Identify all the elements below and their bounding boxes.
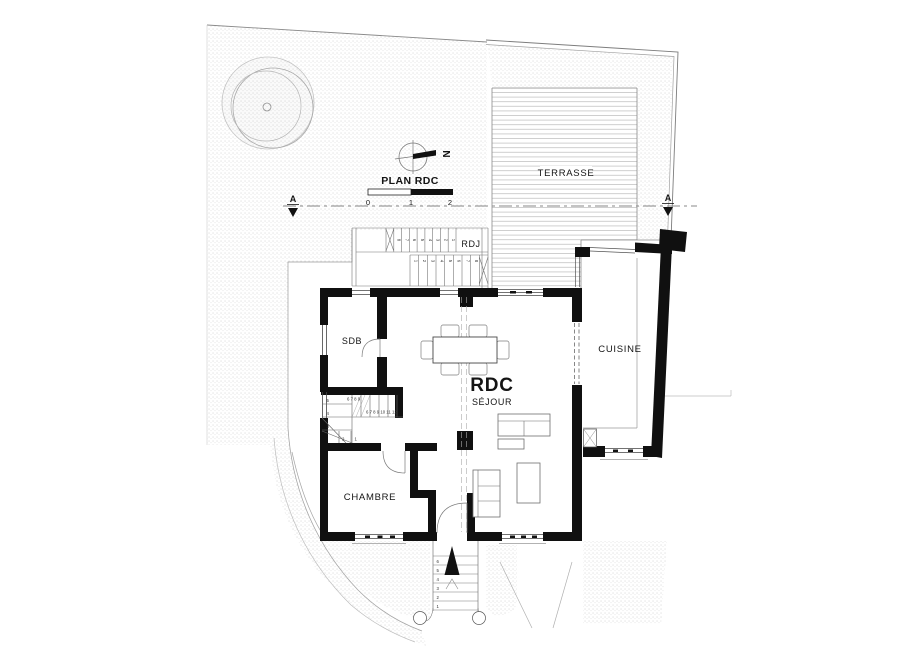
entrance-step-number: 1 bbox=[437, 604, 440, 609]
stair-numbers-upper: 6 7 8 9 10 11 12 bbox=[366, 410, 397, 415]
rdj-step-number: 6 bbox=[457, 260, 462, 263]
rdj-step-number: 1 bbox=[451, 239, 456, 242]
entrance-step-number: 6 bbox=[437, 559, 440, 564]
terrain-right-of-entry bbox=[486, 545, 517, 615]
wall-stair-stub bbox=[395, 395, 403, 418]
scale-bar-black bbox=[411, 189, 453, 195]
window-sdb-west bbox=[323, 325, 327, 355]
stair-number: 2 bbox=[342, 437, 345, 442]
wall-south bbox=[320, 532, 355, 541]
rdj-label: RDJ bbox=[461, 239, 480, 249]
window-mullion bbox=[390, 536, 395, 539]
entrance-step-number: 3 bbox=[437, 586, 440, 591]
cuisine-window-mullion bbox=[613, 450, 618, 453]
stair-numbers-mid: 6 7 8 9 bbox=[347, 397, 361, 402]
cuisine-counter-line bbox=[583, 258, 637, 428]
side-table bbox=[498, 439, 524, 449]
furniture bbox=[421, 325, 550, 517]
rdj-step-number: 4 bbox=[428, 239, 433, 242]
interior-stair: 5 4 3 2 1 6 7 8 9 6 7 8 9 10 11 12 bbox=[322, 395, 403, 443]
sofa-vertical bbox=[473, 470, 500, 517]
wall-east bbox=[572, 288, 582, 322]
rdj-step-number: 1 bbox=[413, 260, 418, 263]
tree-symbol bbox=[222, 57, 314, 149]
entrance-stair-sides bbox=[433, 541, 478, 611]
rdj-step-number: 4 bbox=[439, 260, 444, 263]
rdj-step-number: 7 bbox=[465, 260, 470, 263]
door-chambre bbox=[383, 451, 405, 473]
wall-chambre-jog bbox=[410, 490, 436, 498]
cuisine-glazing-north bbox=[590, 248, 635, 254]
cuisine-wall-south bbox=[583, 446, 605, 457]
wall-duct-block bbox=[457, 431, 473, 450]
wall-sdb-east bbox=[377, 292, 387, 339]
scale-bar-white bbox=[368, 189, 411, 195]
chair bbox=[469, 363, 487, 375]
scale-tick-0: 0 bbox=[366, 198, 370, 207]
entrance-arrow bbox=[445, 546, 460, 575]
window-mullion bbox=[532, 536, 537, 539]
rdj-upper-step-numbers: 8 7 6 5 4 3 2 1 bbox=[397, 239, 456, 242]
rdj-stairs: 8 7 6 5 4 3 2 1 1 2 3 4 5 6 7 8 RDJ bbox=[352, 228, 488, 288]
north-letter: N bbox=[440, 150, 451, 157]
wall-north bbox=[458, 288, 498, 297]
cuisine-window-mullion bbox=[628, 450, 633, 453]
rdj-step-number: 5 bbox=[448, 260, 453, 263]
chair bbox=[441, 325, 459, 337]
stair-number: 4 bbox=[327, 411, 330, 416]
wall-east bbox=[572, 385, 582, 541]
window-sdb-north bbox=[352, 291, 370, 295]
sejour-furniture bbox=[473, 414, 550, 517]
stair-number: 1 bbox=[355, 437, 358, 442]
chambre-label: CHAMBRE bbox=[344, 492, 396, 503]
sejour-label: SÉJOUR bbox=[472, 397, 512, 407]
wall-stair-top bbox=[321, 387, 403, 395]
wall-west bbox=[320, 288, 328, 325]
sdb-label: SDB bbox=[342, 336, 362, 346]
cuisine-corner-pier bbox=[575, 247, 590, 257]
entrance-post-left bbox=[414, 612, 427, 625]
entrance-step-number: 5 bbox=[437, 568, 440, 573]
entrance-step-number: 2 bbox=[437, 595, 440, 600]
wall-chambre-east bbox=[410, 443, 418, 497]
property-line-right bbox=[662, 390, 731, 396]
window-mullion bbox=[378, 536, 383, 539]
wall-chambre-east-lower bbox=[428, 498, 436, 534]
chair bbox=[497, 341, 509, 359]
rdj-step-number: 5 bbox=[420, 239, 425, 242]
rdc-label: RDC bbox=[470, 375, 514, 396]
rdj-step-number: 8 bbox=[397, 239, 402, 242]
window-mullion bbox=[510, 536, 515, 539]
section-marker-left-label: A bbox=[290, 194, 297, 204]
dining-set bbox=[421, 325, 509, 375]
rdj-lower-flight-cross bbox=[479, 257, 488, 284]
terrasse-deck bbox=[492, 88, 637, 240]
scale-tick-1: 1 bbox=[409, 198, 413, 207]
wall-south bbox=[467, 532, 502, 541]
slider-handle bbox=[510, 291, 516, 294]
wall-west bbox=[320, 355, 328, 392]
floor-plan-svg: TERRASSE A A N PLAN RDC 0 1 2 8 7 6 bbox=[0, 0, 919, 650]
section-marker-right-label: A bbox=[665, 193, 672, 203]
cuisine-pass-through-opening bbox=[575, 323, 580, 384]
terrain-bottom-right bbox=[583, 541, 667, 624]
chair bbox=[441, 363, 459, 375]
scale-tick-2: 2 bbox=[448, 198, 452, 207]
door-entrance bbox=[437, 503, 467, 533]
rdj-step-number: 3 bbox=[436, 239, 441, 242]
wall-chambre-north bbox=[322, 443, 381, 451]
axis-dashed-lines bbox=[462, 297, 467, 532]
chair bbox=[469, 325, 487, 337]
cuisine-wall-south bbox=[643, 446, 659, 457]
entrance-arrow-chevron bbox=[446, 579, 458, 589]
wall-sdb-east bbox=[377, 357, 387, 387]
rdj-step-number: 8 bbox=[474, 260, 479, 263]
window-mullion bbox=[521, 536, 526, 539]
entrance-step-number: 4 bbox=[437, 577, 440, 582]
dining-table bbox=[433, 337, 497, 363]
stair-number: 5 bbox=[327, 398, 330, 403]
rdj-step-number: 2 bbox=[422, 260, 427, 263]
window-terrasse-slider bbox=[498, 290, 543, 296]
rdj-lower-step-numbers: 1 2 3 4 5 6 7 8 bbox=[413, 260, 479, 263]
chair bbox=[421, 341, 433, 359]
slider-handle bbox=[526, 291, 532, 294]
cuisine-wing: CUISINE bbox=[575, 243, 673, 460]
entrance-post-right bbox=[473, 612, 486, 625]
cuisine-window-south bbox=[605, 449, 643, 453]
rdj-upper-flight-cross bbox=[386, 229, 394, 251]
coffee-table bbox=[517, 463, 540, 503]
cuisine-label: CUISINE bbox=[598, 344, 641, 355]
rdj-step-number: 3 bbox=[431, 260, 436, 263]
stair-number: 3 bbox=[327, 424, 330, 429]
floor-plan-canvas: TERRASSE A A N PLAN RDC 0 1 2 8 7 6 bbox=[0, 0, 919, 650]
window-mullion bbox=[365, 536, 370, 539]
window-hall-north bbox=[440, 291, 458, 295]
rdj-step-number: 6 bbox=[412, 239, 417, 242]
door-sdb bbox=[362, 339, 380, 357]
entrance-step-numbers: 6 5 4 3 2 1 bbox=[437, 559, 440, 609]
plan-title: PLAN RDC bbox=[381, 175, 438, 187]
wall-west bbox=[320, 418, 328, 541]
rdj-step-number: 2 bbox=[443, 239, 448, 242]
cuisine-wall-east bbox=[651, 245, 672, 458]
rdj-step-number: 7 bbox=[404, 239, 409, 242]
interior-stair-numbers: 5 4 3 2 1 6 7 8 9 6 7 8 9 10 11 12 bbox=[327, 397, 398, 442]
terrasse-label: TERRASSE bbox=[538, 168, 595, 179]
wall-chambre-north bbox=[405, 443, 437, 451]
terrasse-deck-extension bbox=[492, 240, 581, 288]
